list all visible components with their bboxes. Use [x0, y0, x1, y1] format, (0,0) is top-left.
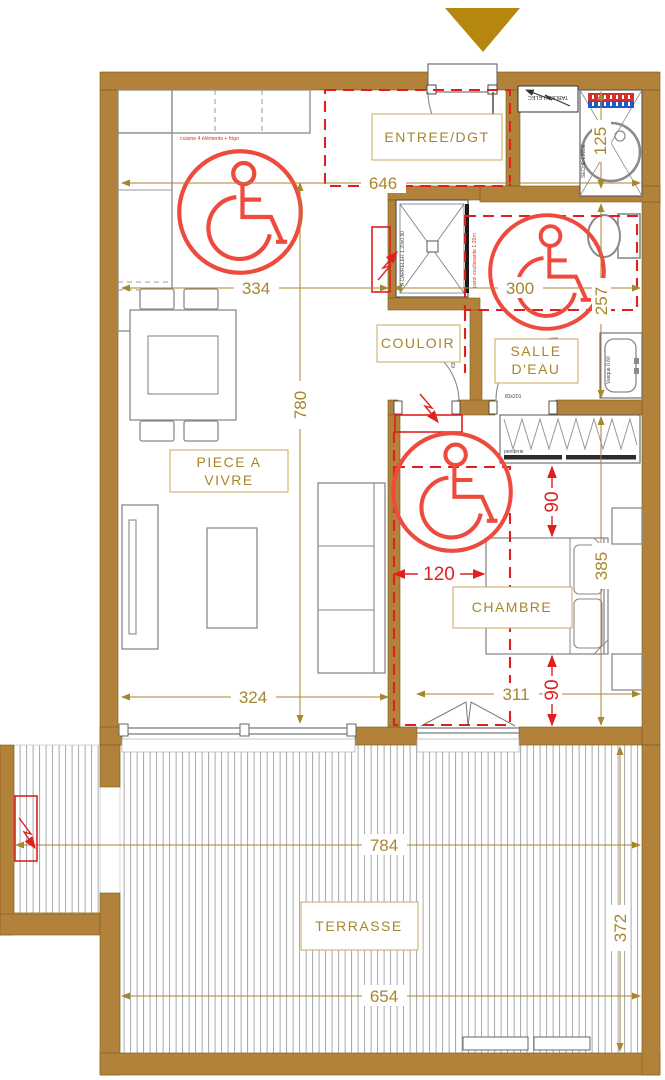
dim-bedroom-height: 385 [592, 552, 611, 580]
terrace-planter [463, 1037, 528, 1050]
living-furniture [122, 483, 385, 673]
towel-radiator [372, 227, 390, 292]
dim-bedroom-width: 311 [502, 685, 529, 704]
dim-elec-recess: 125 [591, 127, 610, 155]
dim-clearance-top: 90 [542, 491, 563, 512]
dim-kitchen-width: 334 [242, 279, 270, 298]
electrical-panel: TABLEAU ELEC [518, 86, 578, 112]
nightstand [612, 654, 642, 690]
dim-entree-width: 646 [369, 174, 397, 193]
dim-clearance-bottom: 90 [542, 679, 563, 700]
shower-note: A CARRELER 1.20x0.90 [400, 231, 406, 286]
wheelchair-icon [179, 151, 301, 273]
room-label-salle-eau-2: D'EAU [511, 361, 560, 377]
room-label-salle-eau-1: SALLE [510, 343, 561, 359]
bay-window [119, 724, 356, 752]
vanity-sink: Vasque 0.60 [600, 333, 642, 398]
room-label-piece-vivre-2: VIVRE [204, 472, 254, 488]
room-label-piece-vivre-1: PIECE A [197, 454, 262, 470]
floor-plan-page: cuisine 4 éléments + frigo A CARRELER 1.… [0, 0, 665, 1080]
vanity-label: Vasque 0.60 [606, 356, 612, 384]
nightstand [612, 508, 642, 544]
bathroom-door-size: 83x201 [505, 394, 522, 400]
wheelchair-icon [490, 215, 604, 329]
dim-bath-height: 257 [592, 287, 611, 315]
dim-living-height: 780 [291, 391, 310, 419]
laundry-label: SECHE-LINGE [581, 143, 587, 178]
dim-terrace-overall: 784 [370, 836, 398, 855]
wardrobe-label: penderie [504, 449, 524, 455]
bedroom-radiator [395, 415, 462, 432]
room-label-chambre: CHAMBRE [472, 599, 553, 615]
entry-direction-triangle-icon [445, 8, 520, 52]
terrace-planter [534, 1037, 590, 1050]
kitchen-note: cuisine 4 éléments + frigo [180, 136, 239, 142]
room-label-entree: ENTREE/DGT [384, 129, 489, 145]
room-label-terrasse: TERRASSE [315, 918, 402, 934]
room-label-couloir: COULOIR [381, 335, 455, 351]
dim-terrace-depth: 372 [611, 914, 630, 942]
dining-table [130, 289, 236, 441]
wheelchair-icon [393, 433, 511, 551]
dim-bath-width: 300 [506, 279, 534, 298]
shower-screen-note: paroi coulissante 1.20m [472, 233, 478, 288]
floor-plan-drawing: cuisine 4 éléments + frigo A CARRELER 1.… [0, 0, 665, 1080]
dim-terrace-main: 654 [370, 987, 398, 1006]
wardrobe: penderie [500, 415, 640, 463]
dim-living-width: 324 [239, 688, 267, 707]
dim-clearance-side: 120 [423, 564, 455, 585]
bedroom-french-door [417, 702, 519, 752]
toilet [588, 214, 640, 258]
